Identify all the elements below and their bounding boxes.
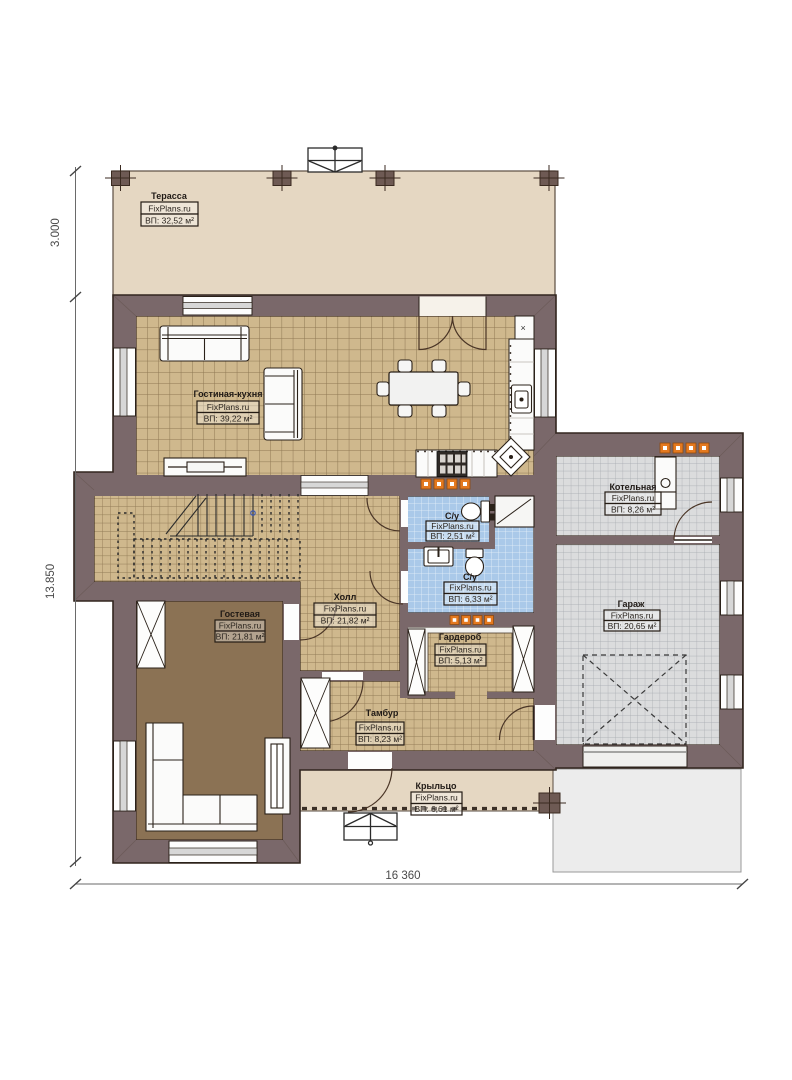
svg-text:FixPlans.ru: FixPlans.ru xyxy=(324,604,367,614)
svg-text:FixPlans.ru: FixPlans.ru xyxy=(207,402,250,412)
svg-text:Крыльцо: Крыльцо xyxy=(416,781,457,791)
svg-text:ВП: 6,33 м²: ВП: 6,33 м² xyxy=(448,594,492,604)
svg-text:ВП: 20,65 м²: ВП: 20,65 м² xyxy=(608,621,657,631)
svg-text:Гараж: Гараж xyxy=(618,599,645,609)
svg-text:FixPlans.ru: FixPlans.ru xyxy=(449,583,492,593)
svg-text:ВП: 2,51 м²: ВП: 2,51 м² xyxy=(430,531,474,541)
svg-text:Котельная: Котельная xyxy=(609,482,656,492)
svg-text:Гардероб: Гардероб xyxy=(439,632,482,642)
svg-text:Терасса: Терасса xyxy=(151,191,188,201)
svg-text:ВП: 5,13 м²: ВП: 5,13 м² xyxy=(438,656,482,666)
svg-text:FixPlans.ru: FixPlans.ru xyxy=(431,521,474,531)
svg-text:С/у: С/у xyxy=(445,511,459,521)
svg-text:ВП: 21,82 м²: ВП: 21,82 м² xyxy=(321,616,370,626)
svg-text:FixPlans.ru: FixPlans.ru xyxy=(359,723,402,733)
svg-text:Гостевая: Гостевая xyxy=(220,609,260,619)
svg-text:FixPlans.ru: FixPlans.ru xyxy=(611,611,654,621)
svg-text:×: × xyxy=(521,323,526,333)
svg-text:FixPlans.ru: FixPlans.ru xyxy=(219,621,262,631)
svg-text:ВП: 32,52 м²: ВП: 32,52 м² xyxy=(145,216,194,226)
svg-text:ВП: 39,22 м²: ВП: 39,22 м² xyxy=(204,414,253,424)
svg-text:Холл: Холл xyxy=(334,592,357,602)
svg-text:FixPlans.ru: FixPlans.ru xyxy=(439,645,482,655)
svg-text:3.000: 3.000 xyxy=(50,218,62,247)
svg-text:16 360: 16 360 xyxy=(385,870,420,882)
svg-text:ВП: 8,23 м²: ВП: 8,23 м² xyxy=(358,734,402,744)
svg-text:С/у: С/у xyxy=(463,572,477,582)
svg-text:Гостиная-кухня: Гостиная-кухня xyxy=(194,389,263,399)
svg-text:Тамбур: Тамбур xyxy=(366,708,399,718)
svg-text:13.850: 13.850 xyxy=(45,564,57,599)
svg-text:ВП: 21,81 м²: ВП: 21,81 м² xyxy=(216,632,265,642)
svg-text:ВП: 6,61 м²: ВП: 6,61 м² xyxy=(414,804,458,814)
svg-text:FixPlans.ru: FixPlans.ru xyxy=(612,493,655,503)
svg-text:FixPlans.ru: FixPlans.ru xyxy=(415,793,458,803)
svg-text:ВП: 8,26 м²: ВП: 8,26 м² xyxy=(611,505,655,515)
svg-text:FixPlans.ru: FixPlans.ru xyxy=(148,204,191,214)
